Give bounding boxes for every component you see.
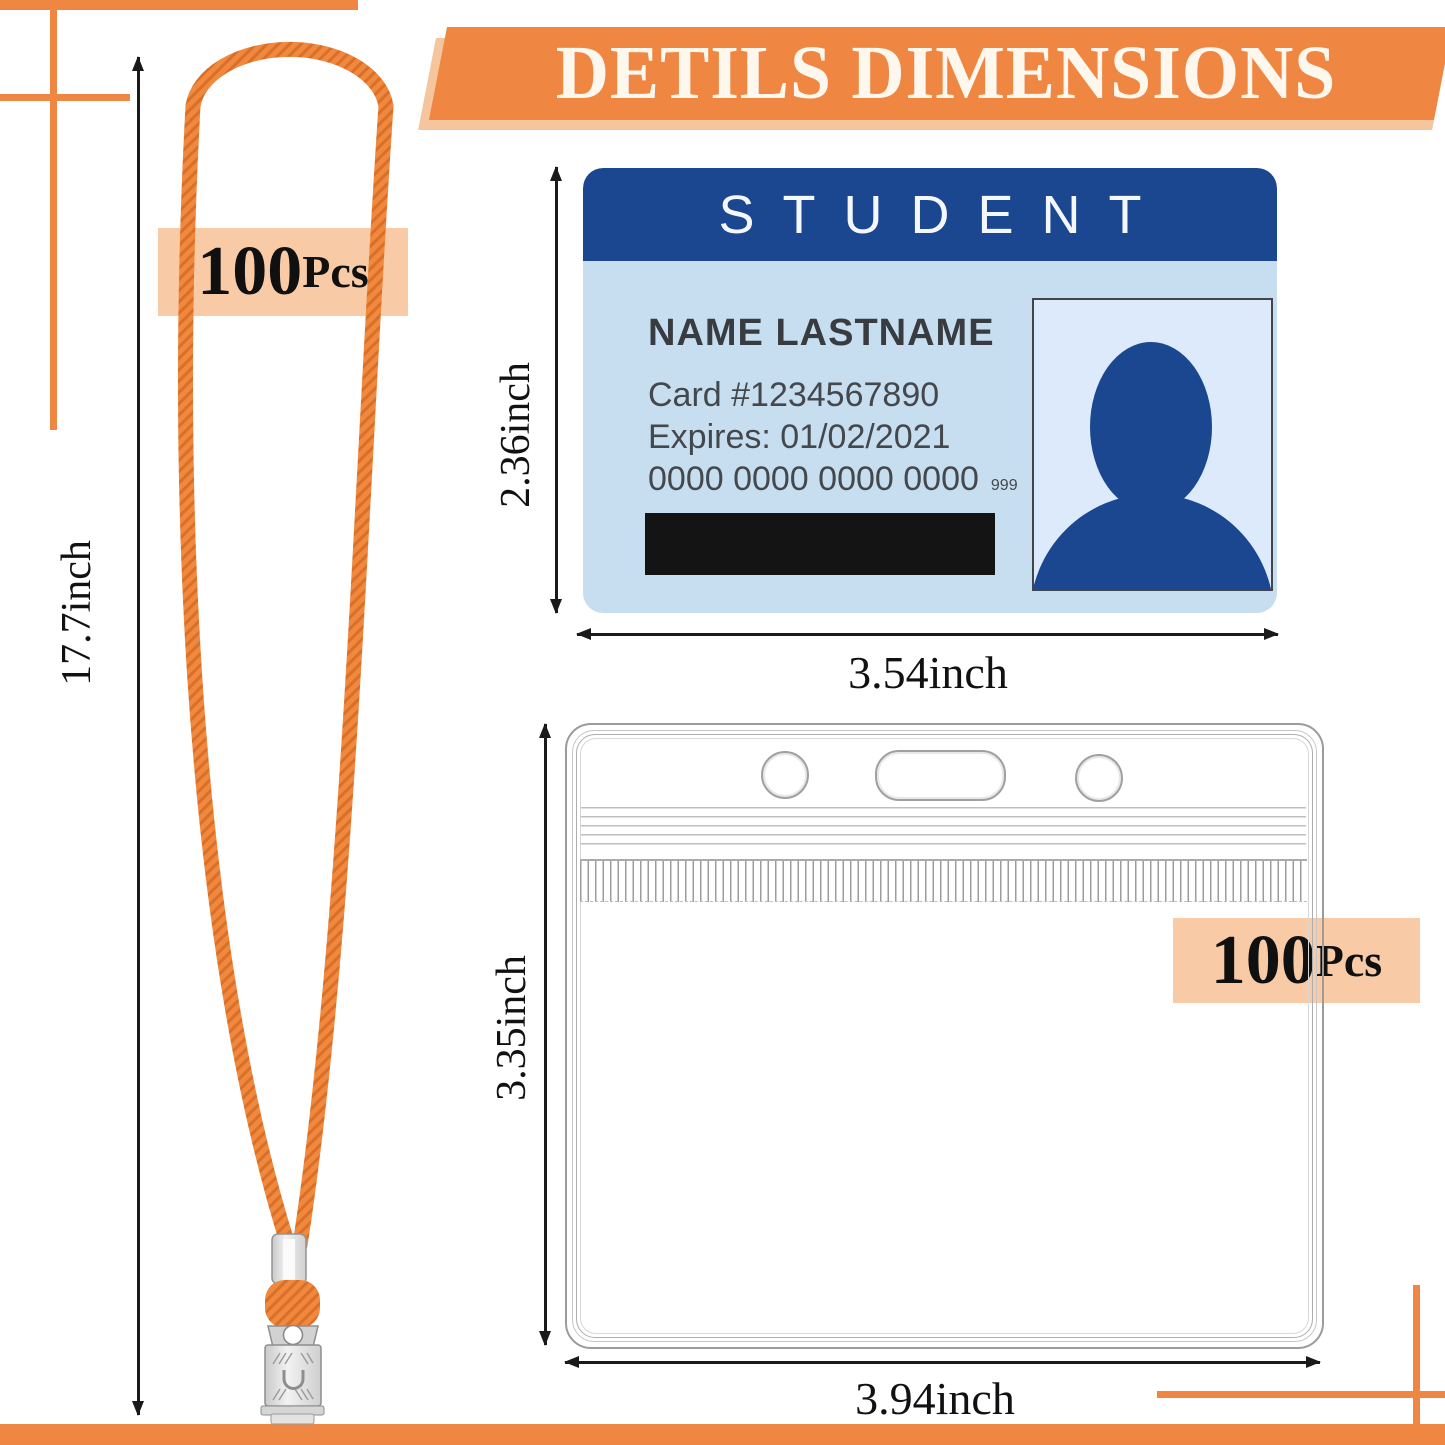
- clip-tab: [271, 1414, 314, 1424]
- pouch-zipper-seal: [580, 859, 1307, 902]
- card-height-label: 2.36inch: [492, 325, 540, 545]
- pouch-fold-lines: [581, 807, 1306, 851]
- product-dimensions-infographic: DETILS DIMENSIONS 100Pcs 100Pcs: [0, 0, 1445, 1445]
- lanyard-strap: [185, 49, 386, 1245]
- card-name: NAME LASTNAME: [648, 312, 995, 355]
- card-digits: 0000 0000 0000 0000: [648, 460, 979, 499]
- card-header-band: STUDENT: [583, 168, 1277, 261]
- clip-crimp-slit: [283, 1239, 295, 1280]
- card-number: Card #1234567890: [648, 376, 939, 415]
- pouch-hole-right: [1075, 754, 1123, 802]
- clip-strap-knot: [265, 1280, 320, 1328]
- pouch-hole-left: [761, 751, 809, 799]
- card-width-label: 3.54inch: [728, 646, 1128, 699]
- holder-height-arrow: [544, 724, 547, 1345]
- card-cvv: 999: [991, 477, 1018, 495]
- clip-body: [265, 1345, 321, 1406]
- holder-width-arrow: [565, 1361, 1320, 1364]
- card-digits-row: 0000 0000 0000 0000 999: [648, 460, 1018, 499]
- lanyard-clip: [261, 1234, 324, 1424]
- card-width-arrow: [577, 633, 1278, 636]
- card-expiry: Expires: 01/02/2021: [648, 418, 950, 457]
- card-header-text: STUDENT: [691, 184, 1170, 246]
- card-magnetic-stripe: [645, 513, 995, 575]
- student-id-card: STUDENT NAME LASTNAME Card #1234567890 E…: [583, 168, 1277, 613]
- pouch-lanyard-slot: [875, 750, 1006, 801]
- lanyard-length-label: 17.7inch: [52, 493, 102, 733]
- lanyard-length-arrow: [137, 57, 140, 1415]
- card-height-arrow: [555, 167, 558, 613]
- clip-hole: [284, 1326, 303, 1345]
- card-photo-box: [1032, 298, 1273, 591]
- photo-silhouette-shoulders: [1032, 494, 1273, 591]
- holder-width-label: 3.94inch: [735, 1372, 1135, 1425]
- photo-silhouette-head: [1090, 342, 1212, 512]
- holder-height-label: 3.35inch: [488, 918, 536, 1138]
- banner-title: DETILS DIMENSIONS: [462, 27, 1430, 120]
- vinyl-holder-pouch: [565, 723, 1324, 1349]
